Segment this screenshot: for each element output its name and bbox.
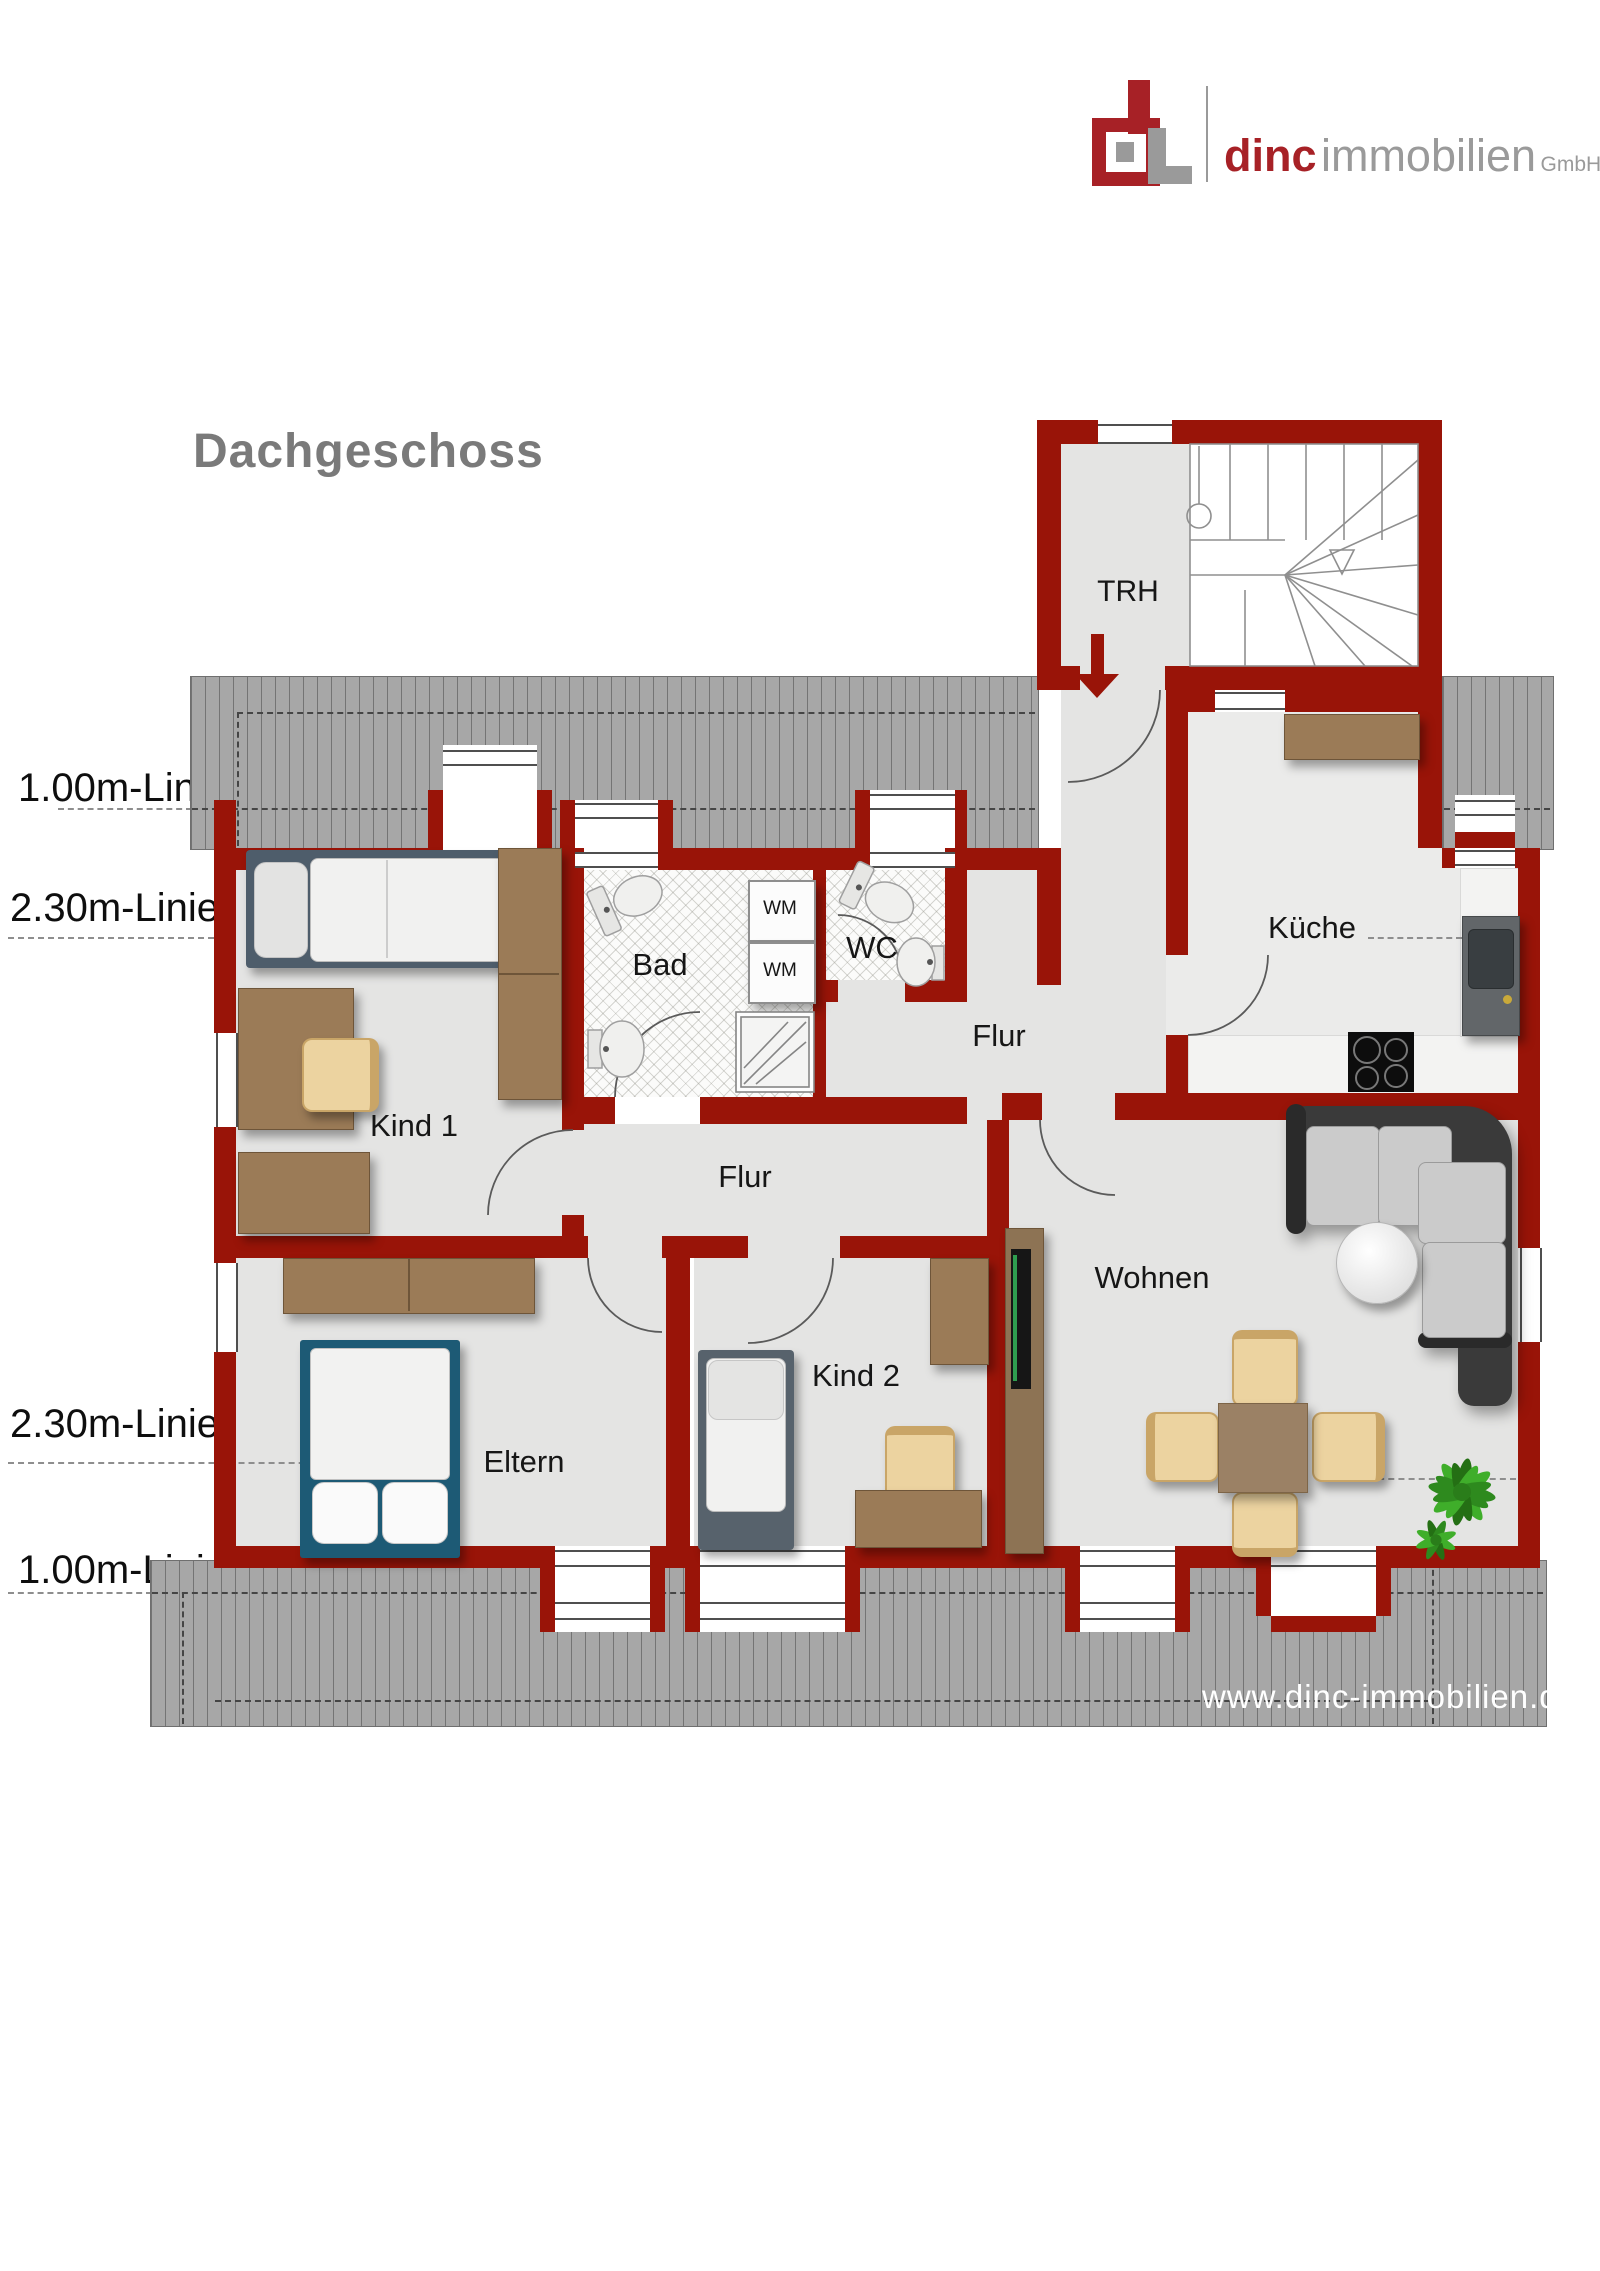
plan-linework [0,0,1600,2271]
toilet [838,861,922,933]
toilet [586,864,670,937]
room-label-eltern: Eltern [484,1444,565,1480]
room-label-flur-main: Flur [718,1159,771,1195]
room-label-kind1: Kind 1 [370,1108,458,1144]
label-wm-2: WM [763,960,797,982]
room-label-kueche: Küche [1268,910,1356,946]
sink [588,1021,644,1077]
sink [897,938,944,986]
room-label-kind2: Kind 2 [812,1358,900,1394]
label-wm-1: WM [763,898,797,920]
room-label-flur-top: Flur [972,1018,1025,1054]
shower [736,1012,814,1092]
room-label-bad: Bad [632,947,687,983]
room-label-trh: TRH [1097,575,1159,609]
website-url: www.dinc-immobilien.de [1202,1678,1578,1716]
room-label-wohnen: Wohnen [1095,1260,1210,1296]
plant [1414,1457,1496,1561]
floorplan-page: dinc immobilien GmbH Dachgeschoss 1.00m-… [0,0,1600,2271]
room-label-wc: WC [846,930,898,966]
